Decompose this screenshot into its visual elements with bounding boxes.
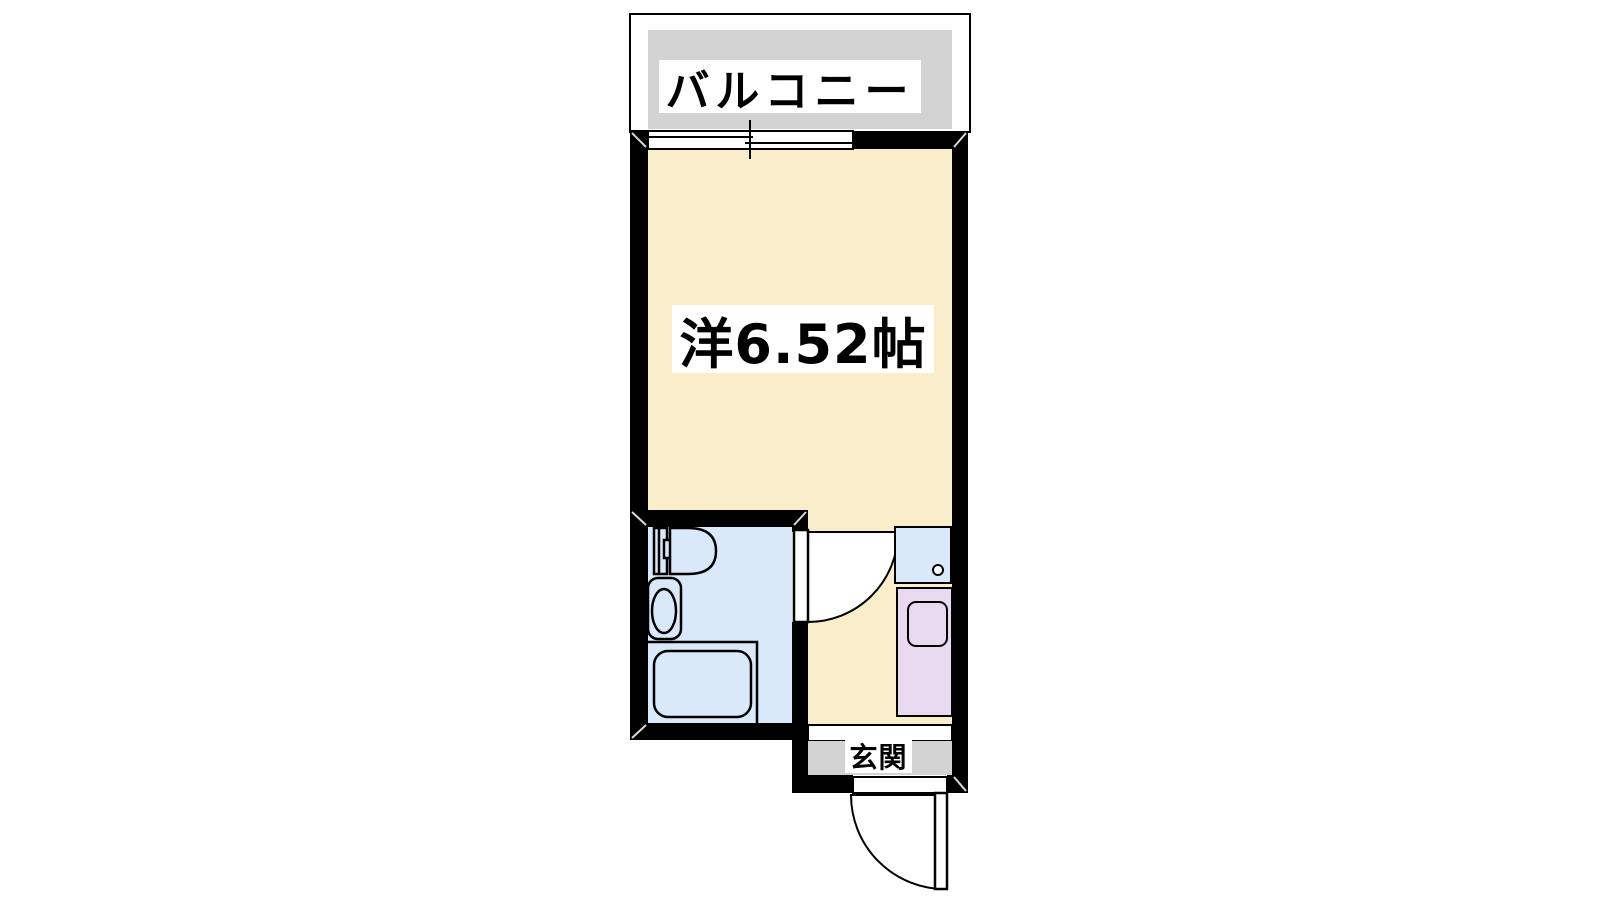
floor-plan: バルコニー 洋6.52帖 玄関 bbox=[0, 0, 1600, 900]
washbasin-bowl bbox=[652, 589, 676, 633]
wall-left bbox=[630, 130, 648, 740]
balcony-label: バルコニー bbox=[659, 60, 921, 113]
kitchen-sink-icon bbox=[895, 527, 951, 583]
kitchen-sink-unit bbox=[895, 527, 951, 583]
entrance-door bbox=[851, 777, 947, 889]
kitchen-faucet bbox=[933, 565, 943, 575]
wall-right bbox=[952, 131, 968, 793]
kitchen-burner bbox=[908, 602, 947, 646]
floor-plan-svg bbox=[0, 0, 1600, 900]
entrance-label: 玄関 bbox=[845, 739, 912, 773]
wall-bathroom-bottom bbox=[630, 723, 808, 740]
toilet-icon bbox=[654, 528, 716, 574]
washbasin-icon bbox=[648, 578, 681, 639]
bathroom-door-leaf bbox=[794, 530, 808, 622]
entrance-door-swing-arc bbox=[851, 795, 945, 889]
wall-hall-left-lower bbox=[792, 622, 808, 793]
wall-room-bathroom bbox=[630, 510, 808, 527]
bathtub-icon bbox=[648, 642, 757, 723]
wall-entrance-bottom-left bbox=[792, 775, 853, 793]
entrance-doorway bbox=[853, 777, 947, 793]
entrance-door-leaf bbox=[935, 793, 947, 889]
bathtub bbox=[654, 651, 751, 717]
main-room-label: 洋6.52帖 bbox=[672, 305, 934, 373]
toilet-bowl bbox=[670, 528, 716, 574]
wall-top-right bbox=[853, 131, 968, 149]
kitchen-counter-icon bbox=[897, 588, 952, 716]
